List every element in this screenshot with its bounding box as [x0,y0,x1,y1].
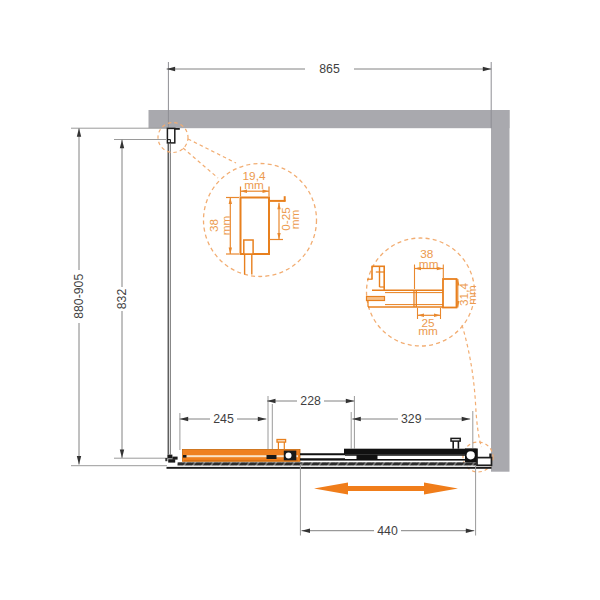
svg-text:329: 329 [401,412,422,426]
svg-text:mm: mm [244,178,264,192]
svg-text:865: 865 [319,62,340,76]
svg-text:245: 245 [213,412,234,426]
svg-text:440: 440 [377,524,398,538]
svg-text:mm: mm [288,210,302,230]
svg-text:832: 832 [115,289,129,310]
svg-text:mm: mm [465,285,479,305]
svg-text:mm: mm [418,324,438,338]
svg-text:228: 228 [300,394,321,408]
svg-text:mm: mm [219,216,233,236]
svg-text:880-905: 880-905 [72,274,86,319]
svg-text:mm: mm [419,257,439,271]
